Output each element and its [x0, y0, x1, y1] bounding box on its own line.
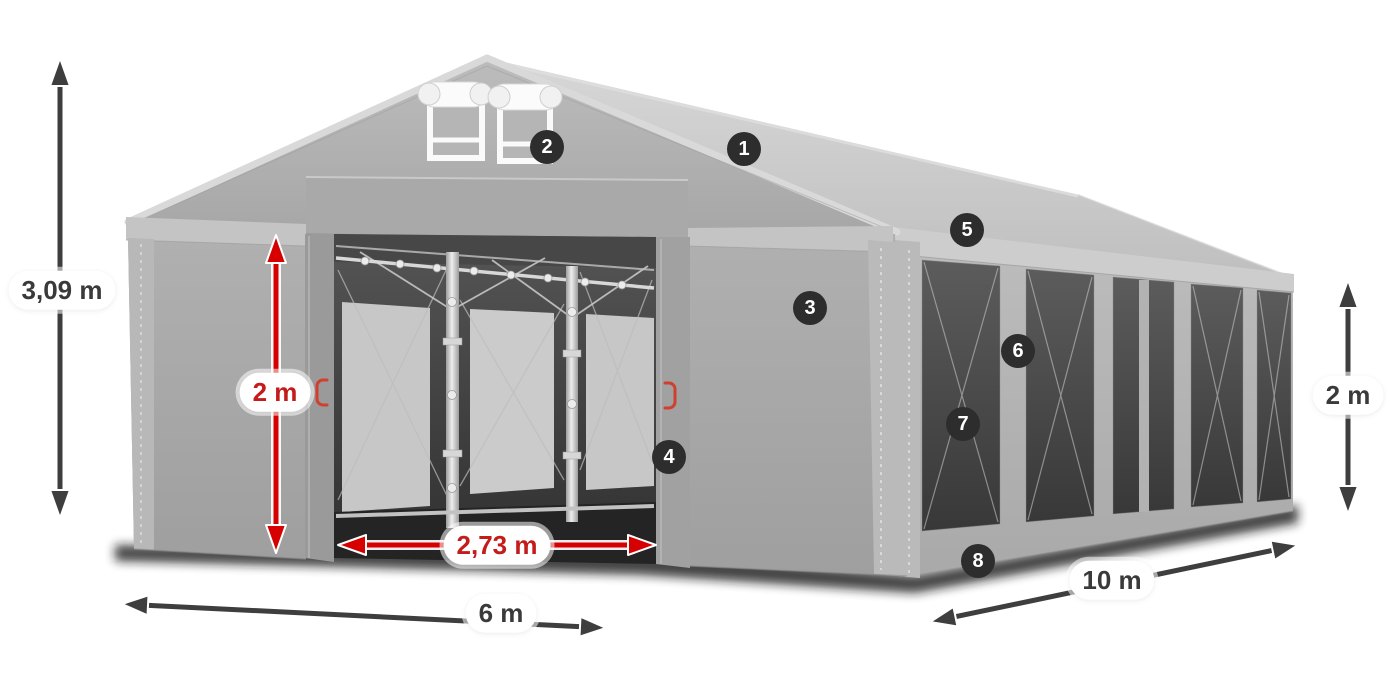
dimension-label-side-length: 10 m: [1069, 561, 1154, 600]
feature-marker-3: 3: [793, 291, 827, 325]
feature-marker-2: 2: [530, 130, 564, 164]
feature-marker-8: 8: [961, 544, 995, 578]
dimension-label-door-height: 2 m: [240, 373, 311, 412]
vent-left: [418, 82, 492, 158]
dimension-label-total-height: 3,09 m: [9, 271, 116, 310]
interior-back-panel: [586, 314, 654, 490]
feature-marker-7: 7: [946, 407, 980, 441]
door-lintel: [306, 176, 688, 238]
feature-marker-4: 4: [652, 440, 686, 474]
feature-marker-5: 5: [950, 213, 984, 247]
door-opening-interior: [330, 228, 660, 568]
dimension-label-door-width: 2,73 m: [444, 526, 551, 565]
door-pillar-right: [656, 237, 690, 568]
dimension-label-front-width: 6 m: [466, 594, 537, 633]
side-door-divider: [1139, 280, 1149, 512]
interior-back-panel: [470, 309, 554, 494]
tent-illustration: [0, 0, 1400, 700]
dimension-label-wall-height: 2 m: [1313, 376, 1384, 415]
front-wall-right: [688, 226, 920, 578]
tent-dimensions-diagram: 3,09 m 2 m 2,73 m 6 m 10 m 2 m 1 2 3 4 5…: [0, 0, 1400, 700]
feature-marker-1: 1: [727, 132, 761, 166]
feature-marker-6: 6: [1001, 334, 1035, 368]
vent-frame: [430, 100, 482, 158]
